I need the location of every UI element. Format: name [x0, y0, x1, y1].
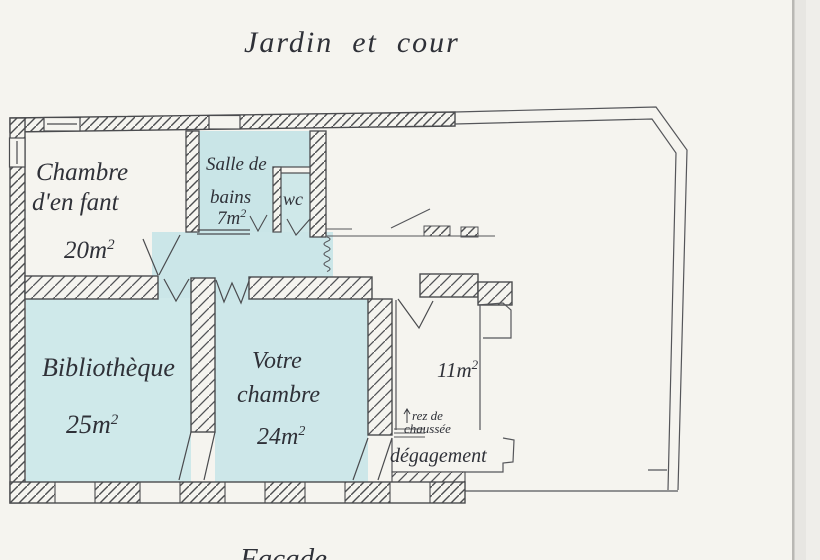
svg-text:chambre: chambre [237, 382, 320, 408]
svg-text:Jardin et cour: Jardin et cour [244, 26, 460, 59]
svg-text:dégagement: dégagement [390, 445, 487, 467]
svg-text:Chambre: Chambre [36, 159, 128, 186]
svg-text:Votre: Votre [252, 348, 302, 374]
svg-text:d'en fant: d'en fant [32, 189, 120, 216]
svg-text:chaussée: chaussée [404, 421, 451, 436]
svg-text:bains: bains [210, 187, 251, 208]
svg-text:Bibliothèque: Bibliothèque [42, 353, 175, 382]
svg-text:Façade: Façade [239, 543, 327, 560]
svg-text:24m2: 24m2 [257, 424, 305, 450]
svg-text:Salle de: Salle de [206, 154, 267, 175]
svg-text:wc: wc [283, 189, 303, 209]
